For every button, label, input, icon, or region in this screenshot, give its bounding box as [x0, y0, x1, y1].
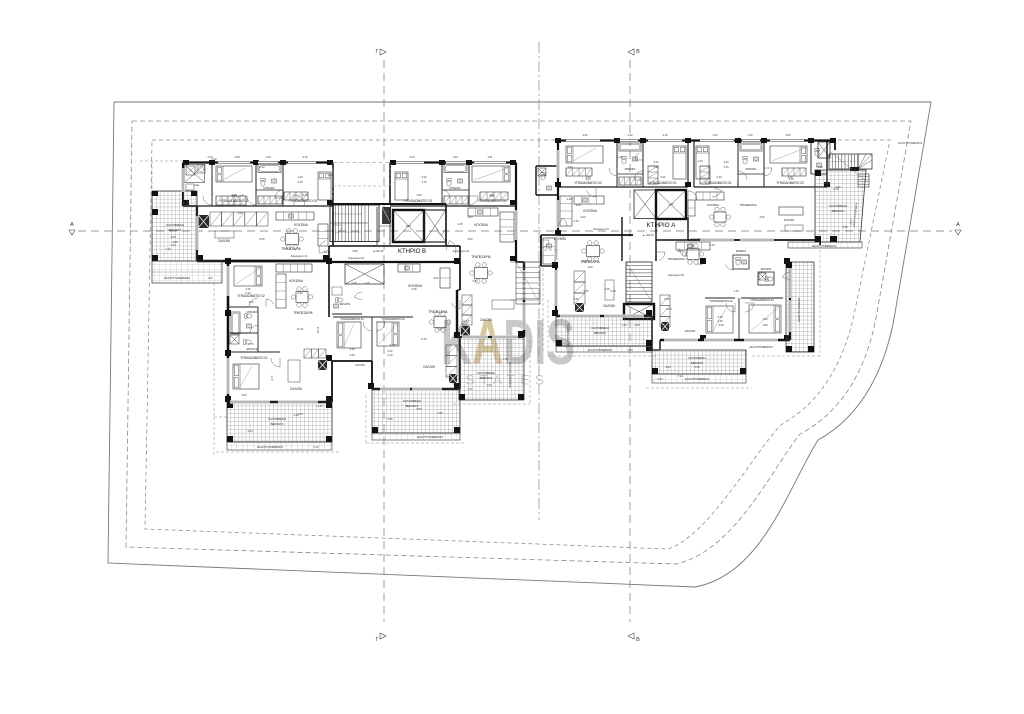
svg-text:ΚΑΛΥΜΜΕΝΗ: ΚΑΛΥΜΜΕΝΗ: [403, 399, 421, 403]
svg-text:2.20: 2.20: [211, 157, 217, 161]
svg-text:1.40: 1.40: [452, 155, 458, 159]
svg-text:1.40: 1.40: [747, 133, 753, 137]
svg-text:2.20: 2.20: [259, 165, 265, 169]
svg-text:ΚΟΥΖΙΝΑ: ΚΟΥΖΙΝΑ: [583, 209, 597, 213]
svg-text:ΜΠΑΝΙΟ: ΜΠΑΝΙΟ: [746, 167, 757, 171]
svg-text:ΑΚΑΛΥΠΤΗ ΒΕΡΑΝΤΑ: ΑΚΑΛΥΠΤΗ ΒΕΡΑΝΤΑ: [685, 378, 710, 381]
svg-text:3.00: 3.00: [580, 215, 586, 219]
svg-text:ΥΠΝΟΔΩΜΑΤΙΟ 02: ΥΠΝΟΔΩΜΑΤΙΟ 02: [381, 317, 405, 321]
svg-text:2.40: 2.40: [717, 319, 723, 323]
svg-text:ΤΡΑΠΕΖΑΡΙΑ: ΤΡΑΠΕΖΑΡΙΑ: [739, 203, 756, 207]
svg-text:ΤΡΑΠΕΖΑΡΙΑ: ΤΡΑΠΕΖΑΡΙΑ: [281, 247, 301, 251]
svg-text:3.40: 3.40: [660, 175, 666, 179]
svg-text:3.80: 3.80: [762, 317, 768, 321]
svg-text:ΥΠΝΟΔΩΜΑΤΙΟ 01: ΥΠΝΟΔΩΜΑΤΙΟ 01: [240, 356, 268, 360]
svg-text:4.20: 4.20: [697, 262, 703, 266]
svg-text:ΚΟΥΖΙΝΑ: ΚΟΥΖΙΝΑ: [289, 279, 303, 283]
svg-text:ΤΡΑΠΕΖΑΡΙΑ: ΤΡΑΠΕΖΑΡΙΑ: [471, 255, 491, 259]
svg-text:3.00: 3.00: [467, 215, 473, 219]
svg-text:3.60: 3.60: [587, 265, 593, 269]
svg-text:ΒΕΡΑΝΤΑ: ΒΕΡΑΝΤΑ: [832, 209, 845, 213]
svg-text:0.90: 0.90: [657, 377, 663, 381]
svg-text:3.00: 3.00: [467, 237, 473, 241]
svg-text:5.45: 5.45: [664, 297, 670, 301]
svg-text:ΚΑΛΥΜΜΕΝΗ: ΚΑΛΥΜΜΕΝΗ: [688, 356, 705, 360]
svg-text:3.15: 3.15: [409, 155, 415, 159]
svg-text:ΒΕΡΑΝΤΑ: ΒΕΡΑΝΤΑ: [480, 376, 493, 380]
svg-text:5.45: 5.45: [583, 289, 589, 293]
svg-text:3.61: 3.61: [489, 193, 495, 197]
svg-text:3.20: 3.20: [694, 365, 700, 369]
svg-text:3.40: 3.40: [716, 175, 722, 179]
svg-text:4.45: 4.45: [566, 197, 572, 201]
svg-text:ΚΑΛΥΜΜΕΝΗ: ΚΑΛΥΜΜΕΝΗ: [591, 326, 608, 330]
svg-text:ΣΑΛΟΝΙ: ΣΑΛΟΝΙ: [480, 318, 492, 322]
svg-text:4.45: 4.45: [411, 287, 417, 291]
svg-text:1.40: 1.40: [297, 175, 303, 179]
svg-text:A: A: [70, 222, 74, 228]
svg-text:ΚΟΥΖΙΝΑ: ΚΟΥΖΙΝΑ: [294, 223, 308, 227]
svg-text:ΑΚΑΛΥΠΤΗ ΒΕΡΑΝΤΑ: ΑΚΑΛΥΠΤΗ ΒΕΡΑΝΤΑ: [798, 298, 801, 323]
svg-text:3.60: 3.60: [788, 177, 794, 181]
svg-text:9.65: 9.65: [259, 237, 265, 241]
svg-text:ENSUITE: ENSUITE: [247, 348, 258, 351]
svg-text:3.15: 3.15: [723, 165, 729, 169]
svg-text:▲ +93.10: ▲ +93.10: [643, 234, 654, 237]
svg-text:2.85: 2.85: [634, 323, 640, 327]
svg-text:6.45: 6.45: [610, 289, 616, 293]
svg-text:3.55: 3.55: [437, 411, 443, 415]
svg-text:10.15: 10.15: [316, 327, 320, 334]
svg-text:3.15: 3.15: [327, 173, 333, 177]
svg-text:Γ: Γ: [375, 637, 378, 643]
svg-text:ΑΚΑΛΥΠΤΗ ΒΕΡΑΝΤΑ: ΑΚΑΛΥΠΤΗ ΒΕΡΑΝΤΑ: [257, 445, 284, 449]
svg-text:ΥΠΝΟΔΩΜΑΤΙΟ 02: ΥΠΝΟΔΩΜΑΤΙΟ 02: [776, 181, 804, 185]
svg-text:ΚΟΥΖΙΝΑ: ΚΟΥΖΙΝΑ: [707, 203, 719, 207]
svg-text:3.60: 3.60: [585, 177, 591, 181]
svg-text:ΤΡΑΠΕΖΑΡΙΑ: ΤΡΑΠΕΖΑΡΙΑ: [428, 310, 448, 314]
svg-text:3.25: 3.25: [717, 315, 723, 319]
svg-text:3.08: 3.08: [231, 193, 237, 197]
svg-text:διαμέρισμα 52: διαμέρισμα 52: [668, 274, 684, 277]
svg-text:ΥΠΝΟΔΩΜΑΤΙΟ 02: ΥΠΝΟΔΩΜΑΤΙΟ 02: [404, 199, 433, 203]
svg-text:3.10: 3.10: [387, 353, 393, 357]
svg-text:0.40: 0.40: [313, 445, 319, 449]
svg-text:3.40: 3.40: [245, 291, 251, 295]
svg-text:1.10: 1.10: [733, 289, 739, 293]
svg-text:3.00: 3.00: [472, 279, 478, 283]
svg-text:ΒΕΡΑΝΤΑ: ΒΕΡΑΝΤΑ: [691, 361, 703, 365]
svg-text:4.45: 4.45: [457, 222, 463, 226]
svg-text:3.15: 3.15: [712, 133, 718, 137]
svg-text:7.90: 7.90: [677, 374, 683, 378]
svg-text:3.40: 3.40: [653, 160, 659, 164]
svg-text:ENSUITE: ENSUITE: [761, 268, 772, 271]
svg-text:3.45: 3.45: [297, 291, 303, 295]
svg-text:3.60: 3.60: [582, 133, 588, 137]
svg-text:1.75: 1.75: [351, 281, 357, 285]
svg-text:▲+91.20: ▲+91.20: [373, 249, 384, 253]
svg-text:ΑΚΑΛΥΠΤΗ ΒΕΡΑΝΤΑ: ΑΚΑΛΥΠΤΗ ΒΕΡΑΝΤΑ: [417, 435, 444, 439]
svg-text:ΣΑΛΟΝΙ: ΣΑΛΟΝΙ: [603, 304, 615, 308]
svg-text:διαμέρισμα 51: διαμέρισμα 51: [593, 228, 609, 231]
svg-text:ΥΠΝΟΔΩΜΑΤΙΟ 02: ΥΠΝΟΔΩΜΑΤΙΟ 02: [237, 294, 265, 298]
svg-text:ΜΠΑΝΙΟ: ΜΠΑΝΙΟ: [449, 186, 461, 190]
svg-text:διαμέρισμα 24: διαμέρισμα 24: [453, 249, 470, 253]
svg-text:1.75: 1.75: [364, 281, 370, 285]
svg-text:LIFT: LIFT: [668, 203, 674, 207]
svg-text:ΥΠΝΟΔΩΜΑΤΙΟ 02: ΥΠΝΟΔΩΜΑΤΙΟ 02: [709, 299, 733, 303]
svg-text:10.15: 10.15: [297, 327, 304, 331]
svg-text:3.60: 3.60: [785, 133, 791, 137]
svg-text:2.75: 2.75: [248, 342, 254, 346]
svg-text:ΤΡΑΠΕΖΑΡΙΑ: ΤΡΑΠΕΖΑΡΙΑ: [293, 311, 313, 315]
svg-text:B: B: [636, 637, 640, 643]
svg-text:3.15: 3.15: [421, 180, 427, 184]
svg-text:3.15: 3.15: [297, 180, 303, 184]
svg-text:ΚΑΛΥΜΜΕΝΗ: ΚΑΛΥΜΜΕΝΗ: [477, 371, 495, 375]
svg-text:ΒΕΡΑΝΤΑ: ΒΕΡΑΝΤΑ: [271, 422, 284, 426]
svg-text:ΑΚΑΛΥΠΤΗ ΒΕΡΑΝΤΑ: ΑΚΑΛΥΠΤΗ ΒΕΡΑΝΤΑ: [509, 362, 512, 388]
svg-text:ΑΚΑΛΥΠΤΗ ΒΕΡΑΝΤΑ: ΑΚΑΛΥΠΤΗ ΒΕΡΑΝΤΑ: [164, 276, 191, 280]
svg-text:5.05: 5.05: [416, 407, 422, 411]
svg-text:3.20: 3.20: [665, 365, 671, 369]
svg-text:1.40: 1.40: [617, 155, 623, 159]
svg-text:ΒΕΡΑΝΤΑ: ΒΕΡΑΝΤΑ: [169, 228, 182, 232]
svg-text:7.15: 7.15: [165, 247, 171, 251]
svg-text:ΜΠΑΝΙΟ: ΜΠΑΝΙΟ: [625, 167, 636, 171]
svg-text:4.10: 4.10: [573, 219, 579, 223]
svg-text:ΥΠΝΟΔΩΜΑΤΙΟ 01: ΥΠΝΟΔΩΜΑΤΙΟ 01: [704, 181, 732, 185]
svg-text:3.80: 3.80: [352, 249, 358, 253]
svg-text:3.15: 3.15: [662, 133, 668, 137]
svg-text:διαμέρισμα 22: διαμέρισμα 22: [348, 257, 364, 260]
svg-text:ΚΤΗΡΙΟ A: ΚΤΗΡΙΟ A: [647, 222, 677, 229]
svg-text:3.30: 3.30: [567, 165, 573, 169]
svg-text:ΑΚΑΛΥΠΤΗ ΒΕΡΑΝΤΑ: ΑΚΑΛΥΠΤΗ ΒΕΡΑΝΤΑ: [898, 142, 923, 145]
svg-text:3.15: 3.15: [302, 193, 308, 197]
svg-text:3.40: 3.40: [293, 413, 299, 417]
svg-text:ΚΟΥΖΙΝΑ: ΚΟΥΖΙΝΑ: [474, 223, 488, 227]
svg-text:Γ: Γ: [375, 49, 378, 55]
svg-text:ΣΑΛΟΝΙ: ΣΑΛΟΝΙ: [218, 239, 230, 243]
svg-text:ΚΑΛΥΜΜΕΝΗ: ΚΑΛΥΜΜΕΝΗ: [166, 223, 184, 227]
svg-text:3.61: 3.61: [487, 155, 493, 159]
svg-text:ΑΚΑΛΥΠΤΗ ΒΕΡΑΝΤΑ: ΑΚΑΛΥΠΤΗ ΒΕΡΑΝΤΑ: [567, 323, 570, 347]
svg-text:ΣΑΛΟΝΙ: ΣΑΛΟΝΙ: [685, 329, 696, 333]
svg-text:ΓΚ·ΥΣ·ΤΑ: ΓΚ·ΥΣ·ΤΑ: [555, 236, 565, 239]
svg-text:ΥΠΝΟΔΩΜΑΤΙΟ 01: ΥΠΝΟΔΩΜΑΤΙΟ 01: [478, 199, 507, 203]
svg-text:1.20: 1.20: [207, 276, 213, 280]
svg-text:2.20: 2.20: [387, 349, 393, 353]
svg-text:6.30: 6.30: [842, 225, 848, 229]
svg-text:ΤΡΑΠΕΖΑΡΙΑ: ΤΡΑΠΕΖΑΡΙΑ: [667, 257, 684, 261]
svg-text:ΣΑΛΟΝΙ: ΣΑΛΟΝΙ: [784, 218, 795, 222]
svg-text:3.40: 3.40: [723, 160, 729, 164]
svg-text:2.15: 2.15: [709, 243, 715, 247]
svg-text:ENSUITE: ENSUITE: [340, 303, 351, 306]
svg-text:1.05: 1.05: [627, 348, 633, 352]
svg-text:3.08: 3.08: [234, 155, 240, 159]
svg-text:3.65: 3.65: [237, 211, 243, 215]
svg-text:A: A: [956, 222, 960, 228]
svg-text:LIFT: LIFT: [406, 224, 412, 228]
svg-text:3.60: 3.60: [582, 259, 588, 263]
svg-text:7.00: 7.00: [467, 387, 473, 391]
svg-text:5.05: 5.05: [387, 417, 393, 421]
svg-text:ΚΑΛΥΜΜΕΝΗ: ΚΑΛΥΜΜΕΝΗ: [829, 204, 847, 208]
svg-text:ΚΤΗΡΙΟ B: ΚΤΗΡΙΟ B: [398, 249, 426, 255]
svg-text:3.00: 3.00: [575, 203, 581, 207]
svg-text:8.40: 8.40: [833, 187, 839, 191]
svg-text:ΥΠΝΟΔΩΜΑΤΙΟ 01: ΥΠΝΟΔΩΜΑΤΙΟ 01: [649, 181, 677, 185]
svg-text:5.45: 5.45: [573, 297, 579, 301]
svg-text:ΥΠΝΟΔΩΜΑΤΙΟ 01: ΥΠΝΟΔΩΜΑΤΙΟ 01: [750, 298, 774, 302]
svg-text:ΜΠΑΝΙΟ: ΜΠΑΝΙΟ: [736, 250, 746, 253]
svg-text:3.60: 3.60: [437, 327, 443, 331]
svg-text:3.10: 3.10: [389, 343, 395, 347]
svg-text:ΑΚΑΛΥΠΤΗ ΒΕΡΑΝΤΑ: ΑΚΑΛΥΠΤΗ ΒΕΡΑΝΤΑ: [812, 245, 837, 248]
svg-text:1.40: 1.40: [265, 155, 271, 159]
svg-text:ΔΩΜ.: ΔΩΜ.: [194, 184, 200, 187]
svg-text:ΜΠΑΝΙΟ: ΜΠΑΝΙΟ: [247, 310, 258, 314]
svg-text:ΒΕΡΑΝΤΑ: ΒΕΡΑΝΤΑ: [594, 331, 606, 335]
svg-text:5.45: 5.45: [666, 307, 672, 311]
svg-text:3.65: 3.65: [759, 215, 765, 219]
svg-text:3.15: 3.15: [302, 155, 308, 159]
svg-text:3.15: 3.15: [416, 193, 422, 197]
svg-text:6.75: 6.75: [317, 404, 323, 408]
svg-text:1.40: 1.40: [627, 133, 633, 137]
svg-text:ΥΠΝΟΔΩΜΑΤΙΟ 02: ΥΠΝΟΔΩΜΑΤΙΟ 02: [574, 181, 602, 185]
svg-text:4.20: 4.20: [677, 249, 683, 253]
svg-text:3.70: 3.70: [270, 375, 274, 381]
svg-text:3.30: 3.30: [241, 393, 247, 397]
svg-text:3.65: 3.65: [170, 235, 176, 239]
svg-text:ΥΠΝΟΔΩΜΑΤΙΟ 01: ΥΠΝΟΔΩΜΑΤΙΟ 01: [340, 317, 364, 321]
svg-text:3.25: 3.25: [248, 300, 254, 304]
svg-text:3.40: 3.40: [247, 429, 253, 433]
svg-text:3.25: 3.25: [621, 323, 627, 327]
svg-text:ΣΑΛΟΝΙ: ΣΑΛΟΝΙ: [355, 363, 365, 367]
svg-text:1.40: 1.40: [697, 159, 703, 163]
svg-text:ΑΚΑΛΥΠΤΗ ΒΕΡΑΝΤΑ: ΑΚΑΛΥΠΤΗ ΒΕΡΑΝΤΑ: [749, 346, 773, 349]
svg-text:3.25: 3.25: [718, 323, 724, 327]
svg-text:7.15: 7.15: [170, 243, 176, 247]
svg-text:ΜΠΑΝΙΟ: ΜΠΑΝΙΟ: [263, 186, 275, 190]
svg-text:3.25: 3.25: [245, 287, 251, 291]
svg-text:ΣΑΛΟΝΙ: ΣΑΛΟΝΙ: [290, 387, 302, 391]
svg-text:1.75: 1.75: [502, 357, 508, 361]
svg-text:B: B: [636, 49, 640, 55]
svg-text:3.60: 3.60: [433, 276, 439, 280]
svg-text:3.80: 3.80: [762, 323, 768, 327]
svg-text:3.40: 3.40: [421, 175, 427, 179]
svg-text:3.30: 3.30: [349, 347, 355, 351]
svg-text:8.10: 8.10: [421, 337, 427, 341]
svg-text:διαμέρισμα 21: διαμέρισμα 21: [291, 254, 308, 258]
svg-text:7.00: 7.00: [486, 383, 492, 387]
svg-text:ΑΚΑΛΥΠΤΗ ΒΕΡΑΝΤΑ: ΑΚΑΛΥΠΤΗ ΒΕΡΑΝΤΑ: [588, 349, 613, 352]
svg-text:3.30: 3.30: [349, 353, 355, 357]
svg-text:ΚΑΛΥΜΜΕΝΗ: ΚΑΛΥΜΜΕΝΗ: [268, 417, 286, 421]
svg-text:ΣΑΛΟΝΙ: ΣΑΛΟΝΙ: [423, 365, 435, 369]
svg-text:6.45: 6.45: [604, 287, 610, 291]
